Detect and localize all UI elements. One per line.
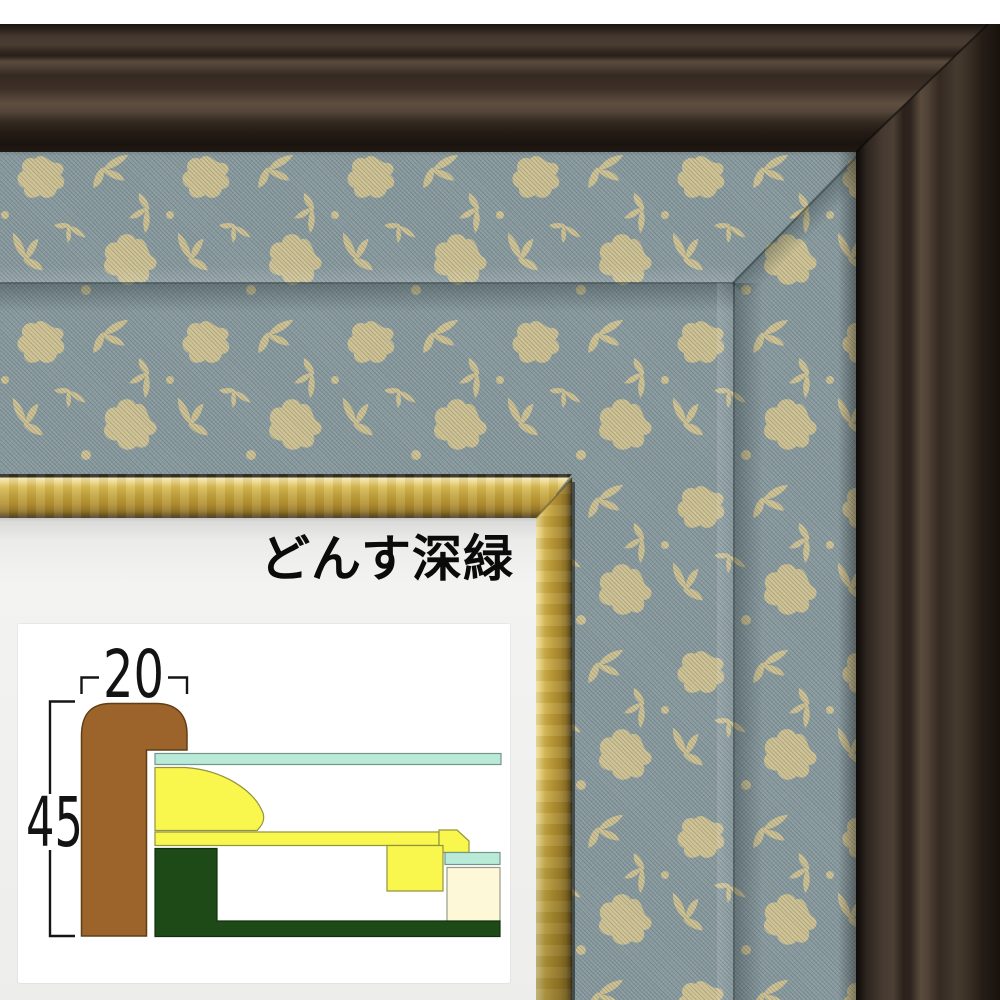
width-dim-tick-left [82, 678, 100, 695]
cross-section-diagram: 20 45 [18, 624, 510, 983]
fabric-frame-shadow-right [838, 140, 858, 1000]
gold-frame-shadow-gap [572, 482, 575, 1000]
fabric-fold-shadow-vertical [735, 283, 763, 1000]
glass-pane-lower [445, 853, 500, 865]
backing-board [447, 868, 500, 922]
fabric-fold-shadow-horizontal [0, 284, 735, 312]
glass-pane [155, 754, 501, 765]
height-dim-tick-top [50, 702, 75, 795]
fabric-fold-highlight-right [717, 283, 734, 1000]
gold-inner-frame-top [0, 474, 572, 518]
outer-frame-right-bar [856, 24, 1000, 1000]
mat-board-strip [155, 832, 439, 846]
mat-board-block [387, 846, 443, 892]
mat-profile-curved [155, 768, 264, 831]
product-name-label: どんす深緑 [260, 529, 514, 589]
photo-background-top [0, 0, 1000, 24]
height-dimension-label: 45 [26, 783, 83, 863]
width-dimension-label: 20 [103, 636, 164, 713]
product-photo: どんす深緑 [0, 0, 1000, 1000]
gold-inner-frame-right [536, 478, 572, 1000]
width-dim-tick-right [168, 678, 187, 695]
fabric-fold-highlight-top [0, 266, 735, 283]
outer-frame-top-bar [0, 24, 1000, 152]
